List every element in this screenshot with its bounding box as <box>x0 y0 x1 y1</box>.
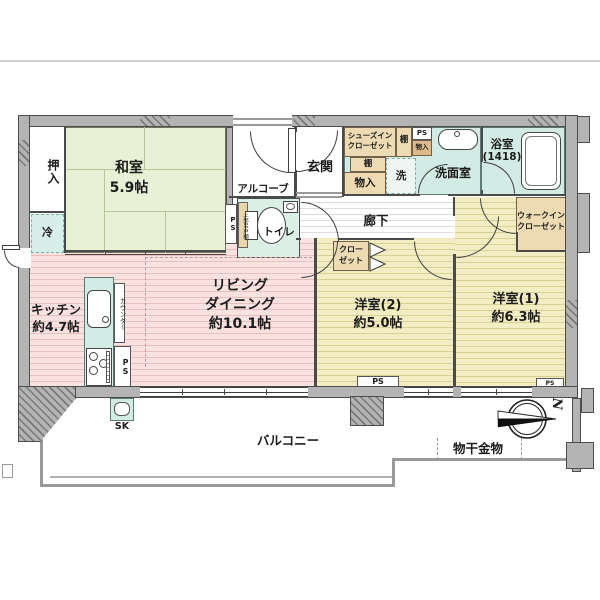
closet-label1: クロー <box>334 245 368 255</box>
bathtub-inner <box>525 136 557 186</box>
wall-right-bump-top <box>577 116 590 143</box>
bathroom-name: 浴室 <box>480 138 524 152</box>
alcove-opening <box>233 114 292 128</box>
slop-sink-basin <box>114 402 130 416</box>
genkan-step-line <box>296 192 342 194</box>
wall-interior <box>64 127 66 253</box>
storage-big-label: 物入 <box>344 177 386 190</box>
window-sash-tick <box>224 389 225 395</box>
oshiire-label: 押入 <box>36 148 60 196</box>
balcony-rail-right <box>392 458 574 461</box>
bathroom-size: (1418) <box>478 151 526 164</box>
wall-hatch <box>566 300 577 328</box>
washer-label: 洗 <box>386 170 416 183</box>
wall-hatch <box>140 116 170 126</box>
wall-corner-block <box>18 386 76 442</box>
wall-hatch <box>19 140 29 166</box>
zone-dash-horizontal <box>145 257 312 259</box>
genkan-label: 玄関 <box>299 160 341 176</box>
genkan-step-line <box>296 196 342 198</box>
wall-pier-balcony <box>350 396 384 426</box>
kitchen-size: 約4.7帖 <box>24 319 88 334</box>
pipe-space-kitchen-label: PS <box>115 352 130 382</box>
service-door-swing <box>4 250 20 268</box>
sliding-door-tick <box>185 250 186 255</box>
washitsu-name: 和室 <box>96 160 162 177</box>
bedroom1-size: 約6.3帖 <box>478 310 554 326</box>
wall-bedroom1-top-stub <box>453 197 455 216</box>
washitsu-size: 5.9帖 <box>96 180 162 197</box>
closet-label2: ゼット <box>334 256 368 266</box>
pipe-space-toilet-label: PS <box>225 210 237 238</box>
washroom-sink-faucet <box>454 131 460 137</box>
wall-right-bump-mid <box>577 193 590 253</box>
hallway-label: 廊下 <box>352 213 400 228</box>
wall-right <box>565 115 578 398</box>
image-border-top <box>0 60 600 62</box>
shoes-in-closet-label1: シューズイン <box>345 131 395 140</box>
wall-bedroom1-bedroom2 <box>453 254 456 386</box>
balcony-rail-step <box>392 458 395 487</box>
refrigerator-label: 冷 <box>31 226 64 239</box>
balcony-divider-tab1 <box>581 388 594 413</box>
wall-hallway-bottom <box>338 238 414 240</box>
balcony-label: バルコニー <box>248 433 328 448</box>
wall-wic-left <box>516 232 518 252</box>
ld-size: 約10.1帖 <box>188 316 292 333</box>
kitchen-sink-faucet <box>102 316 109 323</box>
north-label: N <box>548 396 564 412</box>
shoes-in-closet-label2: クローゼット <box>345 141 395 150</box>
window-sash-tick <box>496 389 497 395</box>
stove-burner <box>89 366 98 375</box>
upper-cabinet-note: 上部吊戸棚 <box>238 204 248 247</box>
laundry-hardware-label: 物干金物 <box>442 441 514 456</box>
shelf-mid-label: 棚 <box>350 159 386 169</box>
balcony-rail-left <box>40 434 43 487</box>
window-sash-tick <box>182 389 183 395</box>
wall-wic-bottom <box>516 250 566 252</box>
closet-bifold-door <box>369 242 389 272</box>
wic-label2: クローゼット <box>515 222 567 232</box>
floor-plan: 押入 和室 5.9帖 冷 アルコーブ 玄関 シューズイン クローゼット 棚 PS… <box>0 0 600 600</box>
balcony-rail-bottom <box>40 484 394 487</box>
wall-bathroom-bottom <box>483 194 565 196</box>
bedroom1-name: 洋室(1) <box>478 292 554 308</box>
balcony-divider-tab2 <box>566 442 594 469</box>
shelf-top-label: 棚 <box>396 135 412 145</box>
stove-grill <box>106 351 110 383</box>
slop-sink-label: SK <box>108 421 136 432</box>
wall-interior <box>30 211 66 213</box>
wall-washroom-bottom <box>448 194 483 196</box>
wall-hatch <box>528 116 558 126</box>
tatami-line <box>165 211 166 253</box>
alcove-opening-line <box>233 118 292 120</box>
pipe-space-bedroom1-label: PS <box>536 380 564 387</box>
toilet-corner-sink-bowl <box>286 203 295 210</box>
sliding-door-tick <box>145 250 146 255</box>
washroom-label: 洗面室 <box>424 166 482 180</box>
zone-dash-vertical <box>145 257 147 367</box>
bedroom2-size: 約5.0帖 <box>340 316 416 332</box>
kitchen-name: キッチン <box>24 302 88 317</box>
window-sash-tick <box>428 389 429 395</box>
wic-label1: ウォークイン <box>515 211 567 221</box>
pipe-space-entrance-label: PS <box>412 129 432 137</box>
wall-washroom-bottom <box>342 194 420 196</box>
stove-burner <box>89 352 98 361</box>
wall-alcove-bottom <box>229 196 300 198</box>
window-sash-tick <box>266 389 267 395</box>
alcove-opening-line <box>233 124 292 126</box>
alcove-label: アルコーブ <box>230 183 296 196</box>
bedroom2-name: 洋室(2) <box>340 298 416 314</box>
wall-hatch <box>293 116 315 126</box>
sliding-door-tick <box>105 250 106 255</box>
pipe-space-bedroom2-label: PS <box>357 377 399 387</box>
laundry-hardware-mark-left <box>437 438 439 460</box>
toilet-label: トイレ <box>258 226 300 239</box>
counter-label: カウンター <box>114 286 125 342</box>
balcony-drain-box <box>2 464 13 478</box>
storage-top-label: 物入 <box>412 144 432 152</box>
balcony-rail-inner <box>50 476 392 478</box>
ld-name1: リビング <box>188 278 292 295</box>
ld-name2: ダイニング <box>188 297 292 314</box>
